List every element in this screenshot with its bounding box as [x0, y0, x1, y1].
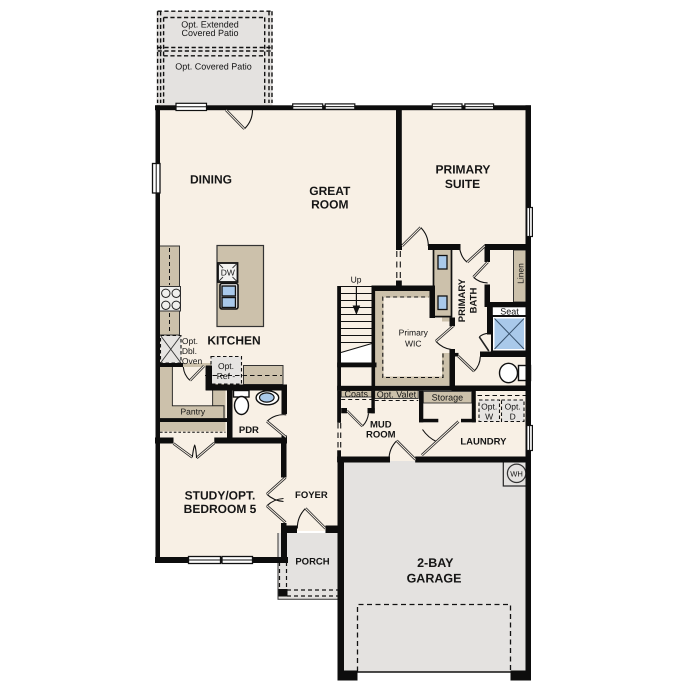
svg-text:WH: WH — [510, 469, 523, 478]
svg-text:D: D — [510, 412, 516, 422]
svg-text:BATH: BATH — [469, 288, 480, 314]
svg-text:Ref -: Ref - — [217, 371, 236, 381]
svg-text:Opt.: Opt. — [481, 402, 497, 412]
svg-text:GARAGE: GARAGE — [407, 572, 462, 586]
svg-text:Primary: Primary — [399, 328, 429, 338]
svg-text:GREAT: GREAT — [309, 184, 351, 198]
svg-text:DW: DW — [221, 268, 235, 278]
svg-text:Dbl.: Dbl. — [182, 346, 197, 356]
svg-text:PRIMARY: PRIMARY — [436, 163, 491, 177]
svg-text:ROOM: ROOM — [366, 429, 396, 440]
svg-text:Opt.: Opt. — [182, 336, 198, 346]
svg-text:STUDY/OPT.: STUDY/OPT. — [185, 489, 256, 503]
svg-text:BEDROOM 5: BEDROOM 5 — [184, 502, 257, 516]
svg-text:SUITE: SUITE — [445, 177, 480, 191]
svg-text:ROOM: ROOM — [311, 197, 348, 211]
svg-text:Opt.: Opt. — [505, 402, 521, 412]
svg-text:Up: Up — [351, 275, 362, 285]
svg-text:Linen: Linen — [515, 263, 525, 284]
svg-text:Opt. Valet: Opt. Valet — [377, 390, 417, 400]
svg-text:WIC: WIC — [405, 338, 422, 348]
svg-text:PDR: PDR — [239, 425, 259, 436]
svg-text:Storage: Storage — [432, 392, 464, 402]
svg-text:KITCHEN: KITCHEN — [207, 334, 260, 348]
svg-text:PORCH: PORCH — [295, 557, 329, 568]
svg-text:LAUNDRY: LAUNDRY — [460, 437, 507, 448]
svg-text:W: W — [485, 412, 493, 422]
svg-text:FOYER: FOYER — [295, 490, 328, 501]
svg-text:Opt.: Opt. — [218, 361, 234, 371]
svg-text:Covered Patio: Covered Patio — [181, 28, 238, 38]
svg-text:2-BAY: 2-BAY — [417, 556, 454, 570]
svg-text:PRIMARY: PRIMARY — [457, 278, 468, 322]
svg-text:Pantry: Pantry — [181, 407, 206, 417]
svg-text:Opt. Covered Patio: Opt. Covered Patio — [175, 61, 252, 71]
svg-text:DINING: DINING — [190, 172, 232, 186]
svg-text:Oven: Oven — [182, 356, 203, 366]
